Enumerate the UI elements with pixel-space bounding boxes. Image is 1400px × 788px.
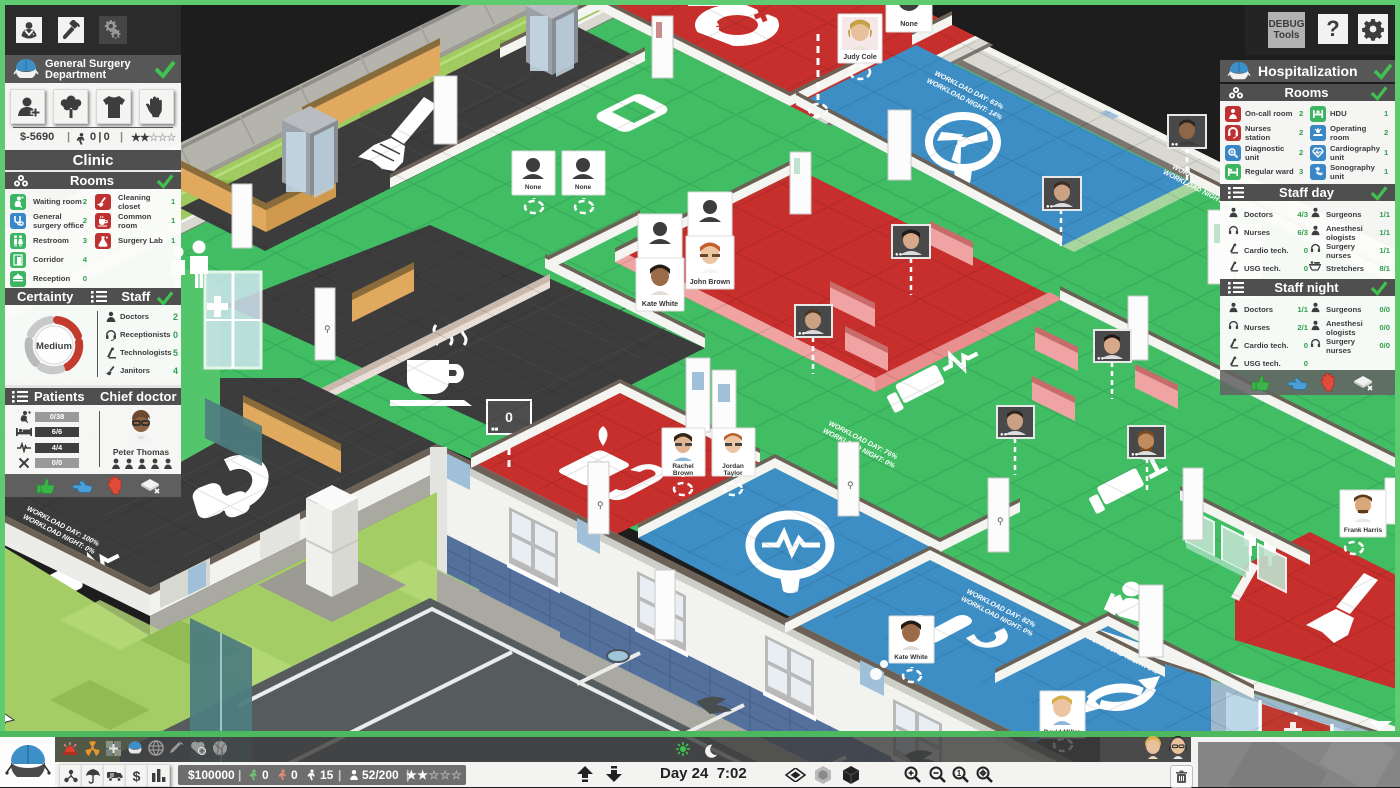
svg-text:1: 1	[957, 769, 962, 778]
svg-text:Medium: Medium	[36, 341, 72, 352]
